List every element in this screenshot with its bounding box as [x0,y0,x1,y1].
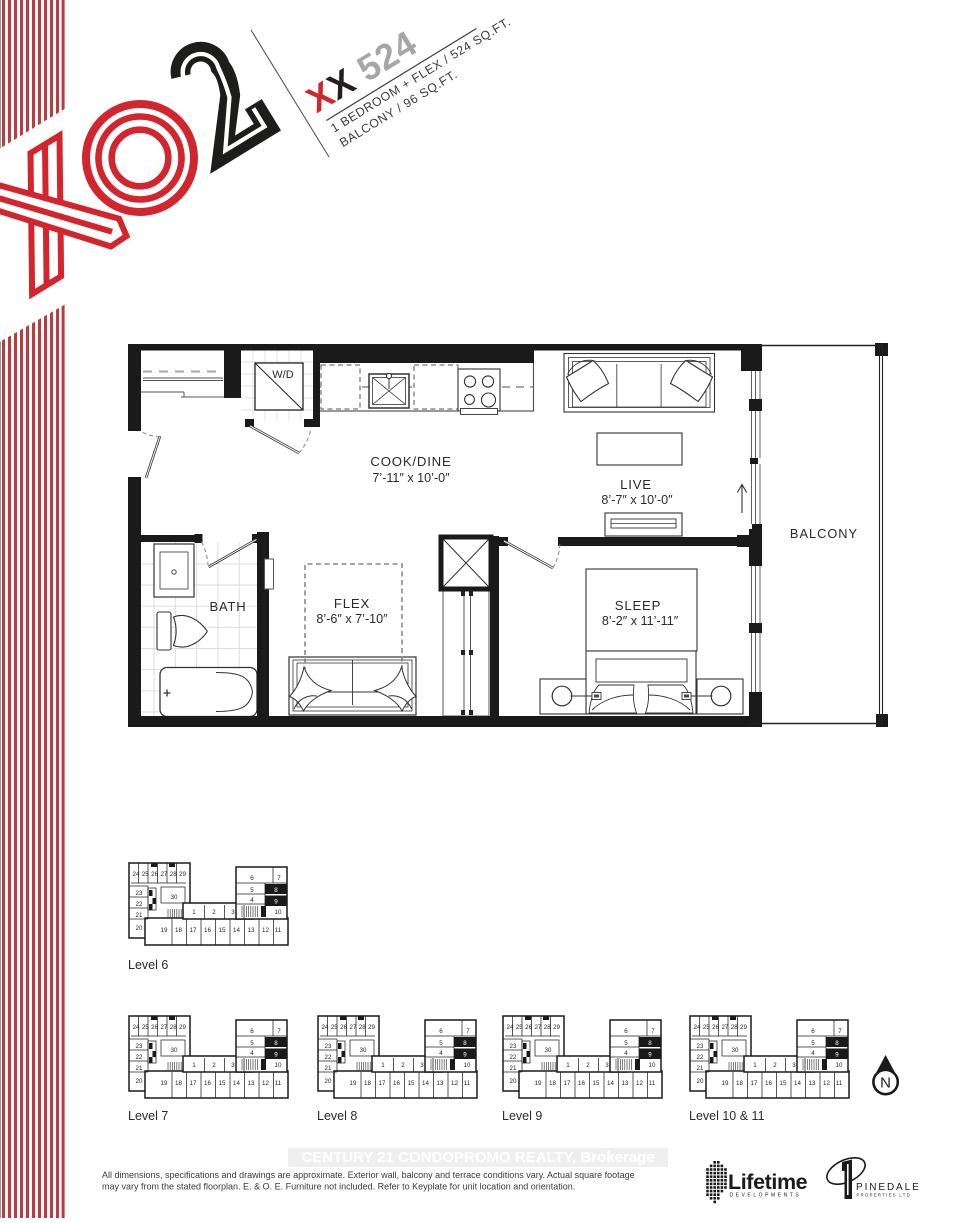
svg-text:BATH: BATH [210,599,247,614]
svg-text:All dimensions, specifications: All dimensions, specifications and drawi… [102,1170,635,1180]
svg-text:8’-6″ x 7’-10″: 8’-6″ x 7’-10″ [316,612,388,626]
svg-text:Lifetime: Lifetime [728,1170,808,1194]
svg-text:Level 10 & 11: Level 10 & 11 [689,1109,765,1123]
svg-text:N: N [880,1075,891,1092]
svg-text:may vary from the stated floor: may vary from the stated floorplan. E. &… [102,1182,575,1192]
svg-text:LIVE: LIVE [620,477,652,492]
svg-text:COOK/DINE: COOK/DINE [370,454,451,469]
svg-text:Level 8: Level 8 [317,1109,357,1123]
svg-text:Level 6: Level 6 [128,958,168,972]
svg-text:DEVELOPMENTS: DEVELOPMENTS [730,1193,802,1199]
svg-text:Level 9: Level 9 [502,1109,542,1123]
svg-text:FLEX: FLEX [334,596,370,611]
svg-text:8’-2″ x 11’-11″: 8’-2″ x 11’-11″ [602,614,679,628]
svg-text:PINEDALE: PINEDALE [856,1182,921,1193]
svg-text:SLEEP: SLEEP [615,598,662,613]
svg-text:Level 7: Level 7 [128,1109,168,1123]
svg-text:W/D: W/D [272,369,293,381]
svg-text:BALCONY: BALCONY [790,526,858,541]
svg-text:PROPERTIES LTD: PROPERTIES LTD [857,1193,912,1198]
svg-text:CENTURY 21 CONDOPROMO REALTY,: CENTURY 21 CONDOPROMO REALTY, Brokerage [301,1149,654,1166]
svg-text:7’-11″ x 10’-0″: 7’-11″ x 10’-0″ [372,471,450,485]
svg-text:8’-7″ x 10’-0″: 8’-7″ x 10’-0″ [601,493,673,507]
